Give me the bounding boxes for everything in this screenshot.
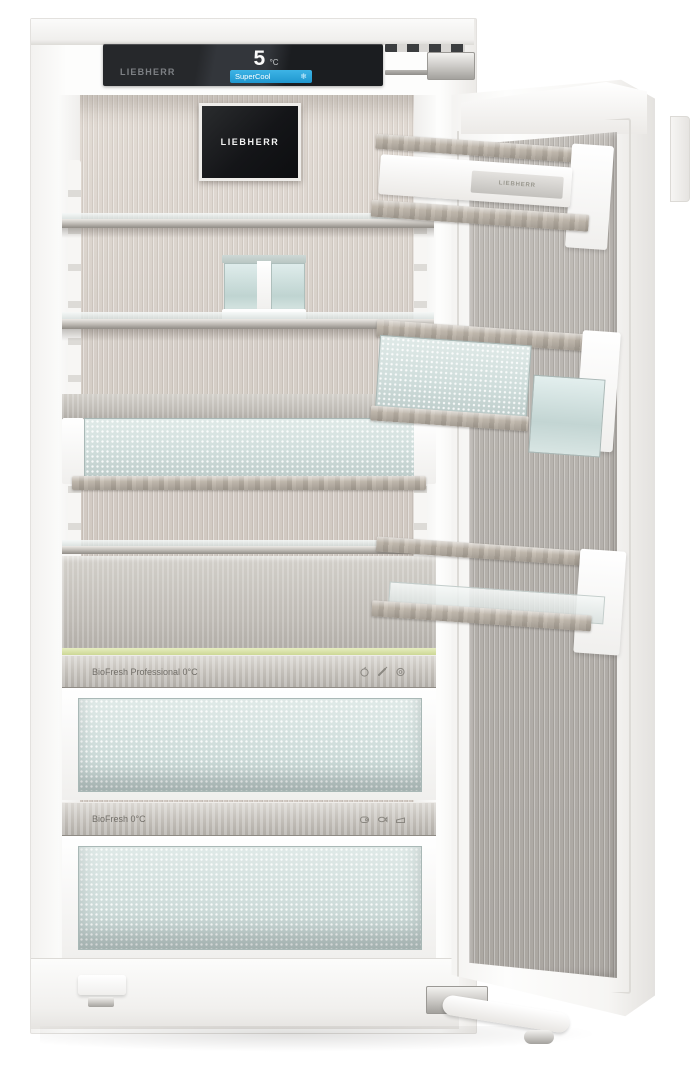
temperature-unit: °C (270, 58, 279, 67)
butter-dish-brand-emboss: LIEBHERR (498, 180, 535, 189)
pullout-drawer-bottom-trim (72, 476, 426, 490)
flex-storage-compartment (224, 263, 258, 311)
biofresh-icons (359, 814, 406, 825)
temperature-value: 5 (253, 47, 265, 70)
temperature-display: 5 °C (221, 47, 311, 69)
pullout-drawer-left-rail (62, 418, 84, 484)
door-damper-arm (441, 994, 571, 1034)
left-foot-bracket (78, 975, 126, 995)
meat-icon (359, 814, 370, 825)
biofresh-label: BioFresh 0°C (92, 814, 146, 824)
inner-display-brand-logo: LIEBHERR (221, 137, 280, 147)
fish-icon (377, 814, 388, 825)
top-hinge-rail (385, 44, 465, 52)
door-rack-top-bracket (565, 143, 614, 250)
biofresh-drawer-front (78, 846, 422, 950)
glass-shelf-2 (62, 312, 434, 319)
inner-display-panel: LIEBHERR (199, 103, 301, 181)
door-rack-bottom (368, 536, 628, 683)
wall-mount-tab (670, 116, 690, 202)
butter-dish: LIEBHERR (378, 154, 572, 207)
bottom-hinge (424, 982, 594, 1054)
biofresh-drawer (62, 836, 436, 958)
cheese-icon (395, 814, 406, 825)
supercool-label: SuperCool (235, 72, 270, 81)
biofresh-bar: BioFresh 0°C (62, 802, 436, 836)
door-rack-top: LIEBHERR (368, 134, 616, 268)
carrot-icon (377, 666, 388, 677)
flex-storage-handle (257, 261, 271, 311)
biofresh-professional-drawer (62, 688, 436, 800)
left-foot (88, 997, 114, 1007)
control-panel: LIEBHERR 5 °C SuperCool ❄ (103, 44, 383, 86)
damper-foot (524, 1030, 554, 1044)
butter-dish-front-plate: LIEBHERR (471, 171, 564, 199)
refrigerator-product-photo: LIEBHERR 5 °C SuperCool ❄ LIEBHERR (0, 0, 690, 1089)
biofresh-professional-drawer-front (78, 698, 422, 792)
flex-storage-compartment (271, 263, 305, 311)
door-rack-middle (367, 320, 621, 477)
snowflake-icon: ❄ (300, 72, 307, 81)
supercool-button: SuperCool ❄ (230, 70, 312, 83)
apple-icon (359, 666, 370, 677)
pullout-drawer-glass-front (84, 418, 416, 480)
control-panel-brand-logo: LIEBHERR (120, 67, 176, 77)
door-bin-right (528, 375, 605, 458)
biofresh-professional-label: BioFresh Professional 0°C (92, 667, 198, 677)
